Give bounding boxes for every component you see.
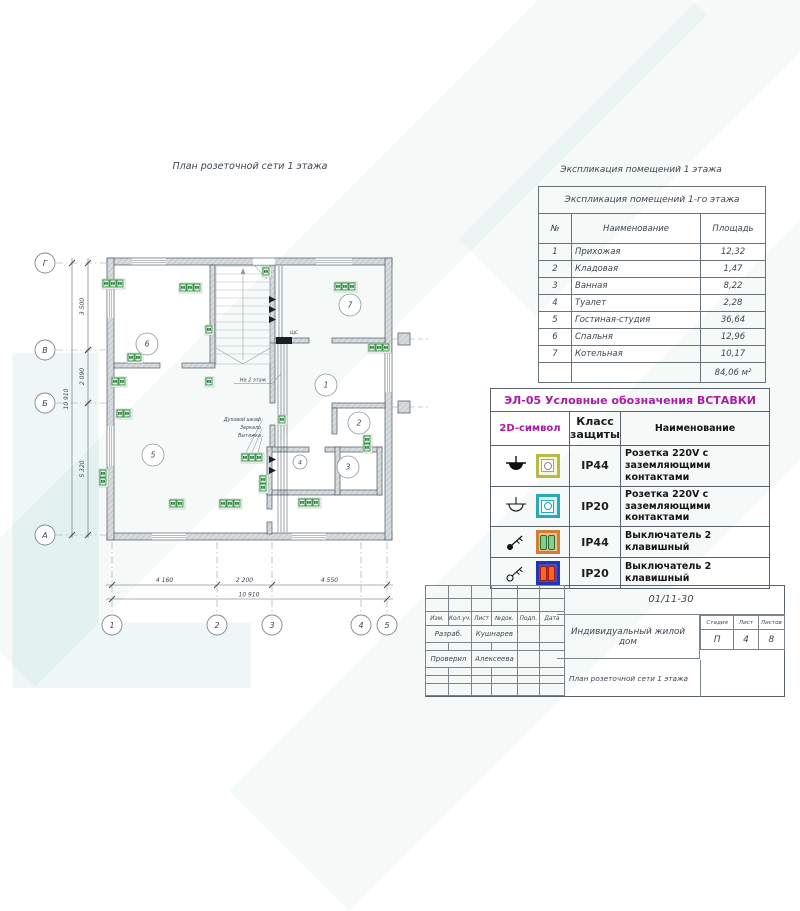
socket-pin: [197, 286, 199, 289]
protection-class: IP20: [570, 486, 621, 527]
socket-symbol: [249, 454, 255, 461]
dim-label: 4 160: [156, 577, 173, 584]
hdr-list: Лист: [471, 612, 491, 626]
axis-label: 1: [109, 621, 114, 630]
socket-pin: [181, 286, 183, 289]
socket-symbol: [349, 283, 355, 290]
switch-2d-open-icon: [501, 561, 531, 585]
table-row: 5Гостиная-студия36,64: [539, 312, 766, 329]
socket-symbol: [100, 470, 106, 477]
socket-pin: [120, 380, 122, 383]
socket-ip44-plate: [536, 454, 560, 478]
socket-symbol: [103, 280, 109, 287]
room-number: 4: [298, 460, 302, 467]
socket-pin: [223, 502, 225, 505]
dim-label: 5 320: [79, 460, 86, 477]
socket-symbol: [279, 416, 285, 423]
socket-pin: [379, 346, 381, 349]
socket-pin: [103, 480, 105, 483]
socket-pin: [384, 346, 386, 349]
socket-pin: [365, 438, 367, 441]
socket-pin: [250, 456, 252, 459]
table-row: 1Прихожая12,32: [539, 244, 766, 261]
socket-symbol: [119, 378, 125, 385]
col-header-num: №: [539, 214, 572, 244]
socket-pin: [235, 502, 237, 505]
socket-symbol: [313, 499, 319, 506]
switch-ip44-plate: [536, 530, 560, 554]
socket-pin: [111, 282, 113, 285]
socket-2d-open-icon: [501, 494, 531, 518]
socket-symbol: [263, 268, 269, 275]
socket-symbol: [112, 378, 118, 385]
socket-pin: [259, 456, 261, 459]
section-markers: [398, 333, 428, 413]
annotation-leader: [252, 428, 263, 453]
room-number: 6: [145, 340, 150, 349]
table-row: 6Спальня12,96: [539, 329, 766, 346]
socket-pin: [127, 412, 129, 415]
socket-pin: [125, 412, 127, 415]
axis-label: Г: [43, 259, 48, 268]
socket-pin: [122, 380, 124, 383]
legend-col-symbol: 2D-символ: [491, 412, 570, 446]
symbol-name: Розетка 220V с заземляющими контактами: [621, 446, 770, 487]
title-block: Изм. Кол.уч. Лист №док. Подп. Дата Разра…: [425, 585, 786, 698]
socket-pin: [129, 356, 131, 359]
socket-pin: [209, 328, 211, 331]
socket-pin: [190, 286, 192, 289]
socket-pin: [138, 356, 140, 359]
axis-label: 2: [214, 621, 219, 630]
stage-value: П: [701, 630, 734, 650]
socket-pin: [302, 501, 304, 504]
socket-pin: [183, 286, 185, 289]
socket-pin: [386, 346, 388, 349]
socket-pin: [252, 456, 254, 459]
doc-number: 01/11-30: [557, 585, 785, 615]
protection-class: IP44: [570, 527, 621, 558]
dim-label: 2 200: [236, 577, 253, 584]
socket-symbol: [117, 280, 123, 287]
socket-symbol: [170, 500, 176, 507]
legend-row: IP20 Розетка 220V с заземляющими контакт…: [491, 486, 770, 527]
socket-pin: [243, 456, 245, 459]
room-number: 1: [324, 381, 329, 390]
protection-class: IP44: [570, 446, 621, 487]
socket-pin: [209, 380, 211, 383]
socket-pin: [261, 478, 263, 481]
proveril-label: Проверил: [426, 651, 472, 668]
socket-pin: [367, 446, 369, 449]
socket-2d-sealed-icon: [501, 454, 531, 478]
socket-pin: [263, 478, 265, 481]
socket-pin: [263, 486, 265, 489]
socket-pin: [345, 285, 347, 288]
appliance-annotation: Зеркало: [240, 425, 261, 431]
socket-pin: [136, 356, 138, 359]
socket-pin: [282, 418, 284, 421]
dim-total-label: 10 910: [239, 592, 260, 599]
socket-pin: [230, 502, 232, 505]
socket-pin: [101, 472, 103, 475]
switch-2d-sealed-icon: [501, 530, 531, 554]
razrab-label: Разраб.: [426, 626, 472, 643]
socket-pin: [118, 282, 120, 285]
socket-symbol: [260, 484, 266, 491]
plan-title: План розеточной сети 1 этажа: [120, 161, 380, 172]
socket-symbol: [342, 283, 348, 290]
axis-label: В: [42, 346, 48, 355]
socket-pin: [350, 285, 352, 288]
sheet-label: Лист: [734, 616, 758, 630]
table-row: 4Туалет2,28: [539, 295, 766, 312]
socket-pin: [180, 502, 182, 505]
socket-pin: [370, 346, 372, 349]
socket-pin: [207, 380, 209, 383]
socket-symbol: [194, 284, 200, 291]
socket-pin: [178, 502, 180, 505]
axis-label: 5: [384, 621, 389, 630]
socket-symbol: [335, 283, 341, 290]
socket-pin: [352, 285, 354, 288]
socket-symbol: [206, 378, 212, 385]
socket-symbol: [117, 410, 123, 417]
switch-ip20-plate: [536, 561, 560, 585]
socket-symbol: [110, 280, 116, 287]
socket-pin: [207, 328, 209, 331]
col-header-name: Наименование: [572, 214, 701, 244]
socket-pin: [309, 501, 311, 504]
col-header-area: Площадь: [701, 214, 766, 244]
socket-symbol: [180, 284, 186, 291]
socket-pin: [261, 486, 263, 489]
floor-plan-drawing: 3 5002 0905 32010 9104 1602 2004 55010 9…: [20, 230, 440, 650]
socket-symbol: [369, 344, 375, 351]
sheet-value: 4: [734, 630, 758, 650]
sheets-value: 8: [758, 630, 784, 650]
appliance-annotation: Духовой шкаф: [223, 417, 261, 423]
socket-symbol: [306, 499, 312, 506]
socket-pin: [221, 502, 223, 505]
socket-pin: [245, 456, 247, 459]
socket-symbol: [135, 354, 141, 361]
axis-label: Б: [42, 399, 48, 408]
room-number: 7: [348, 301, 353, 310]
total-row: 84,06 м²: [539, 363, 766, 383]
socket-symbol: [177, 500, 183, 507]
proveril-name: Алексеева: [471, 651, 517, 668]
dim-label: 2 090: [79, 368, 86, 385]
socket-pin: [115, 380, 117, 383]
socket-pin: [336, 285, 338, 288]
socket-pin: [314, 501, 316, 504]
dim-label: 3 500: [79, 298, 86, 315]
appliance-annotation: Вытяжка: [238, 433, 261, 439]
socket-pin: [113, 380, 115, 383]
socket-pin: [343, 285, 345, 288]
table-row: 2Кладовая1,47: [539, 261, 766, 278]
socket-symbol: [364, 444, 370, 451]
explication-title: Экспликация помещений 1-го этажа: [539, 187, 766, 214]
socket-symbol: [364, 436, 370, 443]
table-row: 7Котельная10,17: [539, 346, 766, 363]
socket-symbol: [234, 500, 240, 507]
symbol-name: Розетка 220V с заземляющими контактами: [621, 486, 770, 527]
axis-label: 3: [269, 621, 274, 630]
socket-pin: [264, 270, 266, 273]
room-number: 3: [346, 463, 351, 472]
axis-label: 4: [358, 621, 363, 630]
socket-pin: [195, 286, 197, 289]
legend-col-name: Наименование: [621, 412, 770, 446]
socket-symbol: [206, 326, 212, 333]
socket-pin: [257, 456, 259, 459]
socket-symbol: [100, 478, 106, 485]
table-row: 3Ванная8,22: [539, 278, 766, 295]
razrab-name: Кушнарев: [471, 626, 517, 643]
socket-pin: [365, 446, 367, 449]
socket-pin: [171, 502, 173, 505]
dim-total-label: 10 910: [63, 388, 70, 409]
socket-symbol: [220, 500, 226, 507]
socket-symbol: [383, 344, 389, 351]
hdr-izm: Изм.: [426, 612, 449, 626]
room-number: 5: [151, 451, 156, 460]
hdr-podp: Подп.: [517, 612, 539, 626]
panel-label: ЩС: [290, 330, 299, 336]
axis-label: А: [41, 531, 47, 540]
socket-pin: [372, 346, 374, 349]
socket-symbol: [242, 454, 248, 461]
socket-pin: [104, 282, 106, 285]
panel-box: [276, 337, 292, 344]
socket-pin: [188, 286, 190, 289]
socket-pin: [120, 412, 122, 415]
socket-pin: [307, 501, 309, 504]
socket-pin: [173, 502, 175, 505]
sheet-title: План розеточной сети 1 этажа: [557, 660, 701, 697]
socket-ip20-plate: [536, 494, 560, 518]
socket-pin: [367, 438, 369, 441]
socket-symbol: [227, 500, 233, 507]
socket-symbol: [376, 344, 382, 351]
legend-col-protection: Класс защиты: [570, 412, 621, 446]
total-area: 84,06 м²: [701, 363, 766, 383]
socket-pin: [280, 418, 282, 421]
socket-pin: [113, 282, 115, 285]
socket-pin: [237, 502, 239, 505]
socket-pin: [377, 346, 379, 349]
socket-symbol: [260, 476, 266, 483]
stairs-direction-label: На 2 этаж: [240, 378, 267, 384]
socket-symbol: [299, 499, 305, 506]
socket-pin: [101, 480, 103, 483]
socket-pin: [106, 282, 108, 285]
socket-pin: [228, 502, 230, 505]
socket-pin: [103, 472, 105, 475]
legend-table: ЭЛ-05 Условные обозначения ВСТАВКИ 2D-си…: [490, 388, 770, 589]
sheets-label: Листов: [758, 616, 784, 630]
stage-sheet-table: Стадия Лист Листов П 4 8: [700, 615, 785, 650]
socket-pin: [120, 282, 122, 285]
symbol-name: Выключатель 2 клавишный: [621, 527, 770, 558]
socket-pin: [316, 501, 318, 504]
hdr-koluch: Кол.уч.: [449, 612, 472, 626]
legend-row: IP44 Выключатель 2 клавишный: [491, 527, 770, 558]
legend-title: ЭЛ-05 Условные обозначения ВСТАВКИ: [491, 389, 770, 412]
socket-symbol: [128, 354, 134, 361]
socket-pin: [118, 412, 120, 415]
socket-pin: [300, 501, 302, 504]
hdr-ndok: №док.: [491, 612, 517, 626]
legend-row: IP44 Розетка 220V с заземляющими контакт…: [491, 446, 770, 487]
explication-caption: Экспликация помещений 1 этажа: [536, 165, 746, 175]
socket-pin: [131, 356, 133, 359]
room-number: 2: [357, 419, 362, 428]
stage-label: Стадия: [701, 616, 734, 630]
dim-label: 4 550: [321, 577, 338, 584]
title-block-signatures: Изм. Кол.уч. Лист №док. Подп. Дата Разра…: [425, 585, 565, 696]
explication-table: Экспликация помещений 1-го этажа № Наиме…: [538, 186, 766, 383]
socket-pin: [338, 285, 340, 288]
socket-symbol: [124, 410, 130, 417]
socket-symbol: [256, 454, 262, 461]
socket-pin: [266, 270, 268, 273]
stairs: [216, 266, 270, 364]
project-name: Индивидуальный жилой дом: [557, 615, 700, 659]
socket-symbol: [187, 284, 193, 291]
